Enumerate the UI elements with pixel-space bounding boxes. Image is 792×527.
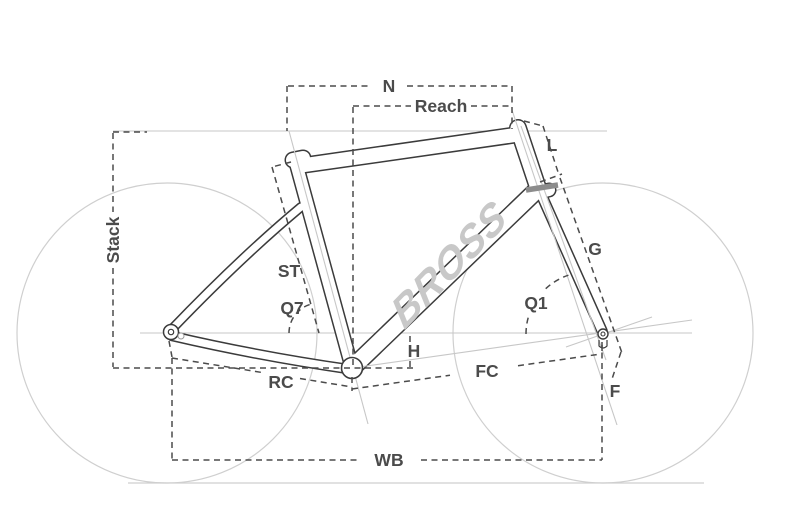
dimension-labels: Stack N Reach ST Q7 H RC FC WB L G Q1 F: [103, 76, 621, 470]
label-f: F: [610, 381, 621, 401]
label-wb: WB: [374, 450, 403, 470]
seat-collar-fill: [293, 158, 303, 160]
label-l: L: [547, 135, 558, 155]
label-g: G: [588, 239, 602, 259]
rear-axle-icon: [168, 329, 173, 334]
brand-logo: BROSS: [384, 189, 514, 338]
f-tick: [612, 352, 621, 379]
front-axle-icon: [601, 332, 605, 336]
label-fc: FC: [475, 361, 499, 381]
label-reach: Reach: [415, 96, 468, 116]
q1-arc-left: [526, 317, 528, 334]
chain-stay-fill: [172, 336, 348, 369]
dimension-lines: [113, 86, 622, 460]
rc-line-left: [172, 358, 262, 373]
label-h: H: [408, 341, 421, 361]
top-tube-fill: [298, 135, 515, 166]
label-q1: Q1: [524, 293, 548, 313]
l-top-tick: [524, 121, 543, 126]
q1-arc-right: [546, 275, 569, 289]
rear-hanger-hole-icon: [178, 333, 184, 339]
label-stack: Stack: [103, 216, 123, 263]
bike-geometry-diagram: BROSS: [0, 0, 792, 527]
wb-dimension: [172, 342, 602, 460]
n-dimension: [287, 86, 512, 131]
fc-line-right: [518, 354, 601, 366]
label-n: N: [383, 76, 396, 96]
rc-corner: [169, 341, 172, 357]
label-q7: Q7: [280, 298, 303, 318]
label-rc: RC: [268, 372, 294, 392]
fc-line-left: [352, 375, 450, 389]
bike-geometry-page: BROSS: [0, 0, 792, 527]
label-st: ST: [278, 261, 301, 281]
seat-tube-fill: [296, 163, 352, 368]
fork-blade-fill: [541, 194, 602, 331]
seat-tube-axis-line: [289, 131, 368, 424]
